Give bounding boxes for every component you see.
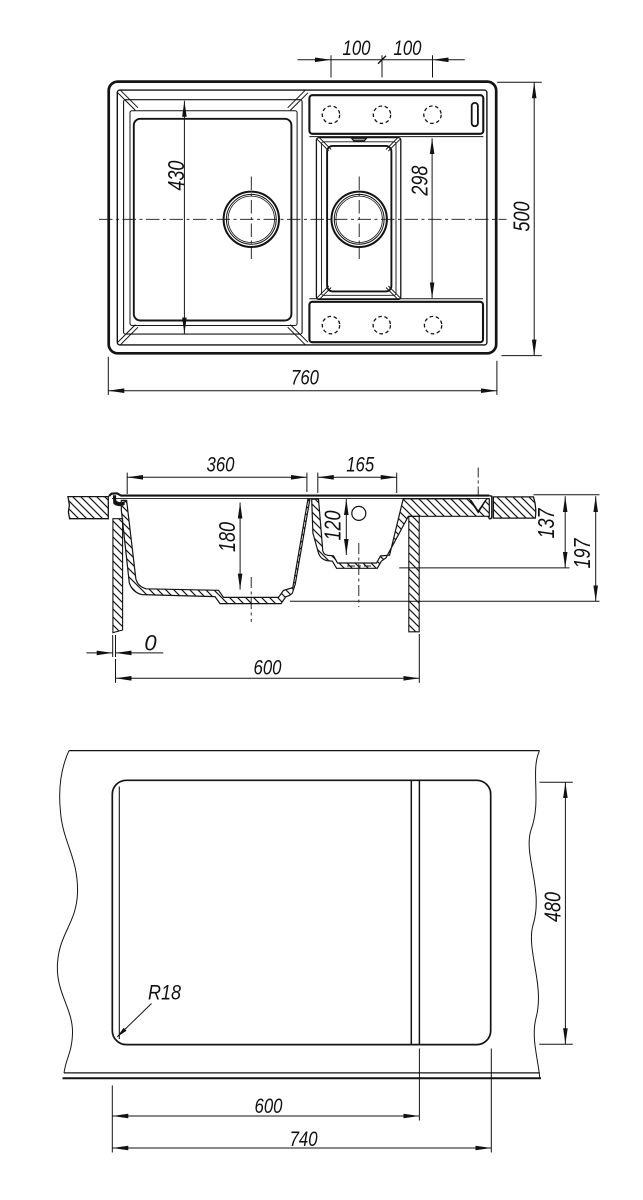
svg-text:480: 480 [540,892,566,922]
svg-text:600: 600 [254,657,282,680]
svg-text:0: 0 [144,631,157,656]
svg-text:137: 137 [533,508,559,539]
svg-text:197: 197 [569,538,595,569]
svg-text:740: 740 [290,1128,318,1151]
svg-text:600: 600 [255,1095,283,1118]
svg-text:298: 298 [407,165,433,196]
svg-text:165: 165 [346,454,374,477]
svg-text:360: 360 [207,454,235,477]
svg-text:760: 760 [291,367,319,390]
svg-text:R18: R18 [148,982,181,1005]
svg-text:500: 500 [509,201,535,231]
svg-text:100: 100 [394,37,422,60]
svg-text:120: 120 [320,510,346,540]
svg-text:100: 100 [343,37,371,60]
svg-text:430: 430 [163,160,189,190]
svg-text:180: 180 [214,522,240,552]
